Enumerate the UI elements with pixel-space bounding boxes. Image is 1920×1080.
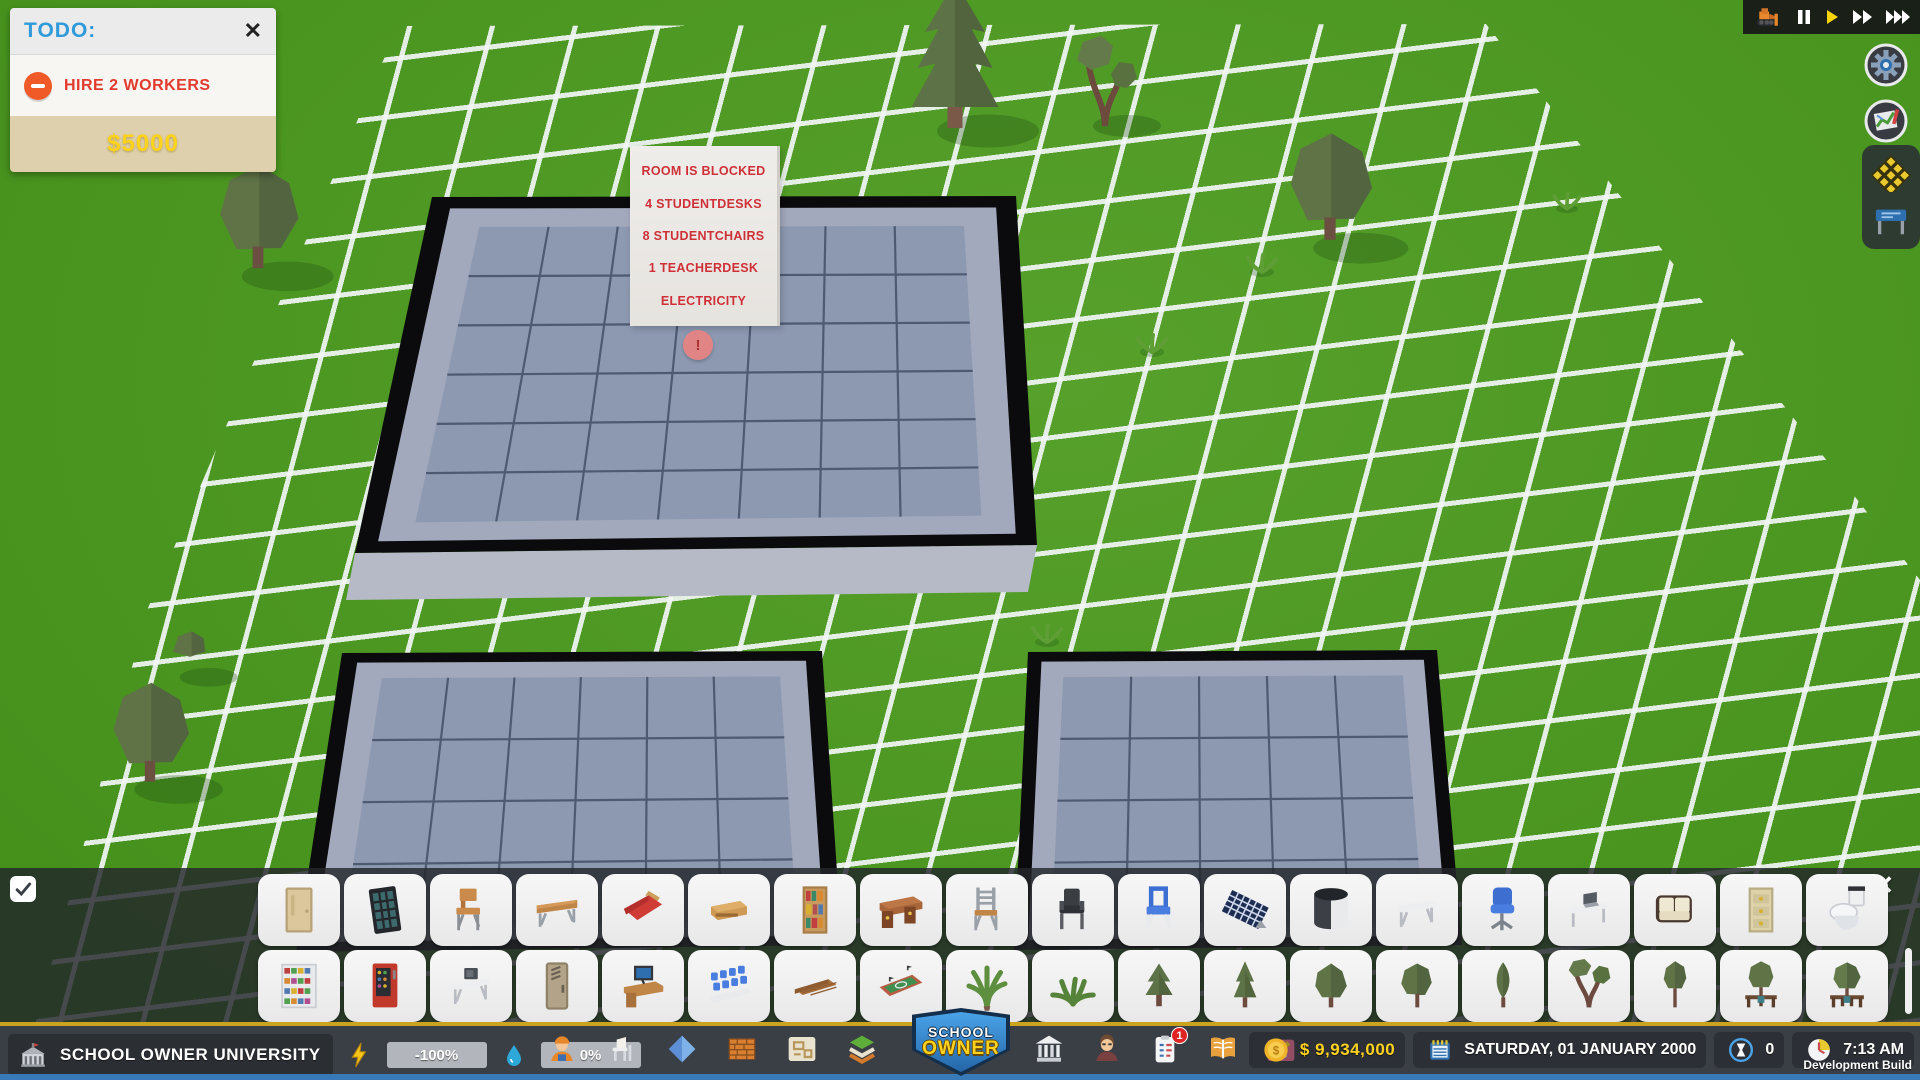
sofa-item[interactable] (1634, 874, 1716, 946)
palette-filter-checkbox[interactable] (10, 876, 36, 902)
tooltip-line: ELECTRICITY (630, 294, 777, 308)
fern-plant-item[interactable] (1032, 950, 1114, 1022)
office-chair-icon (1474, 883, 1532, 937)
game-viewport: ROOM IS BLOCKED4 STUDENTDESKS8 STUDENTCH… (0, 0, 1920, 1080)
bed-icon (614, 883, 672, 937)
computer-desk-icon (614, 959, 672, 1013)
door-icon (270, 883, 328, 937)
settings-button[interactable] (1863, 42, 1909, 88)
round-tree-icon (1388, 959, 1446, 1013)
tall-pine-tree-item[interactable] (1204, 950, 1286, 1022)
computer-table-item[interactable] (1548, 874, 1630, 946)
solar-panel-icon (1216, 883, 1274, 937)
palette-row-2 (258, 950, 1888, 1022)
minus-badge-icon (24, 72, 52, 100)
locker-item[interactable] (516, 950, 598, 1022)
sideboard-item[interactable] (688, 874, 770, 946)
blueprint-icon[interactable] (785, 1032, 819, 1066)
coin-icon: $ (1259, 1033, 1293, 1067)
logo-line2: OWNER (922, 1038, 1000, 1060)
money-value: $ 9,934,000 (1300, 1040, 1395, 1060)
plant-sprout (1248, 255, 1276, 277)
branchy-tree-icon (1560, 959, 1618, 1013)
todo-task-row[interactable]: HIRE 2 WORKERS (10, 54, 276, 116)
office-chair-item[interactable] (1462, 874, 1544, 946)
todo-title: TODO: (24, 19, 244, 43)
ladder-chair-item[interactable] (946, 874, 1028, 946)
play-button[interactable] (1823, 8, 1841, 26)
pine-tree-icon (1130, 959, 1188, 1013)
todo-header: TODO: ✕ (10, 8, 276, 54)
room-requirements-tooltip: ROOM IS BLOCKED4 STUDENTDESKS8 STUDENTCH… (630, 146, 780, 326)
move-tool-icon[interactable] (1868, 156, 1914, 192)
lessons-icon[interactable] (1206, 1032, 1240, 1066)
computer-desk-item[interactable] (602, 950, 684, 1022)
dev-build-label: Development Build (1803, 1058, 1912, 1072)
bed-item[interactable] (602, 874, 684, 946)
map-button[interactable] (1863, 98, 1909, 144)
round-tree-item[interactable] (1376, 950, 1458, 1022)
bench-tree-item[interactable] (1720, 950, 1802, 1022)
staff-icon[interactable] (1090, 1032, 1124, 1066)
shop-shelf-item[interactable] (258, 950, 340, 1022)
hourglass-box[interactable]: 0 (1714, 1032, 1784, 1068)
palette-row-1 (258, 874, 1888, 946)
basketball-court-icon (872, 959, 930, 1013)
desk-icon[interactable] (605, 1032, 639, 1066)
pause-button[interactable] (1795, 8, 1813, 26)
tall-pine-tree-icon (1216, 959, 1274, 1013)
computer-table-icon (1560, 883, 1618, 937)
microwave-table-item[interactable] (430, 950, 512, 1022)
school-building-icon (16, 1038, 50, 1072)
sofa-icon (1646, 883, 1704, 937)
drawer-cabinet-item[interactable] (1720, 874, 1802, 946)
water-drop-icon (497, 1038, 531, 1072)
lecture-seats-item[interactable] (688, 950, 770, 1022)
date-box[interactable]: SATURDAY, 01 JANUARY 2000 (1413, 1032, 1706, 1068)
window-icon (356, 883, 414, 937)
pine-tree-item[interactable] (1118, 950, 1200, 1022)
window-item[interactable] (344, 874, 426, 946)
locker-icon (528, 959, 586, 1013)
university-icon[interactable] (1032, 1032, 1066, 1066)
thin-tree-item[interactable] (1634, 950, 1716, 1022)
tree-round (220, 166, 333, 292)
money-box[interactable]: $ $ 9,934,000 (1249, 1032, 1405, 1068)
hourglass-icon (1724, 1033, 1758, 1067)
energy-value: -100% (387, 1042, 487, 1068)
school-name-box[interactable]: SCHOOL OWNER UNIVERSITY (8, 1034, 333, 1076)
terrain-layers-icon[interactable] (845, 1032, 879, 1066)
tooltip-line: ROOM IS BLOCKED (630, 164, 777, 178)
plant-sprout (1138, 335, 1166, 357)
school-chair-icon (442, 883, 500, 937)
tree-round (114, 683, 223, 804)
todo-reward-value: $5000 (107, 130, 179, 158)
water-tank-icon (1302, 883, 1360, 937)
bench-tree-icon (1732, 959, 1790, 1013)
svg-text:$: $ (1273, 1045, 1280, 1058)
tooltip-line: 1 TEACHERDESK (630, 261, 777, 275)
plant-sprout (1033, 625, 1061, 647)
fast-forward-button[interactable] (1851, 8, 1875, 26)
worker-icon[interactable] (545, 1032, 579, 1066)
bricks-icon[interactable] (725, 1032, 759, 1066)
shop-shelf-icon (270, 959, 328, 1013)
dark-chair-item[interactable] (1032, 874, 1114, 946)
tooltip-line: 8 STUDENTCHAIRS (630, 229, 777, 243)
sideboard-icon (700, 883, 758, 937)
calendar-icon (1423, 1033, 1457, 1067)
white-table-item[interactable] (1376, 874, 1458, 946)
thin-tree-icon (1646, 959, 1704, 1013)
room-warning-marker[interactable]: ! (683, 330, 713, 360)
basketball-court-item[interactable] (860, 950, 942, 1022)
tiles-icon[interactable] (665, 1032, 699, 1066)
fern-plant-icon (1044, 959, 1102, 1013)
tooltip-line: 4 STUDENTDESKS (630, 197, 777, 211)
school-name: SCHOOL OWNER UNIVERSITY (60, 1045, 321, 1065)
blue-chair-item[interactable] (1118, 874, 1200, 946)
todo-task-label: HIRE 2 WORKERS (64, 77, 211, 95)
solar-panel-item[interactable] (1204, 874, 1286, 946)
fastest-speed-button[interactable] (1885, 8, 1913, 26)
bench-tree-2-item[interactable] (1806, 950, 1888, 1022)
furniture-palette: ✕ (0, 868, 1920, 1022)
tree-branchy (1077, 36, 1161, 137)
long-table-icon (528, 883, 586, 937)
school-chair-item[interactable] (430, 874, 512, 946)
microwave-table-icon (442, 959, 500, 1013)
build-menu-icons (545, 1032, 879, 1066)
teacher-desk-icon (872, 883, 930, 937)
speed-control-bar (1743, 0, 1920, 34)
todo-panel: TODO: ✕ HIRE 2 WORKERS $5000 (10, 8, 276, 172)
cypress-tree-icon (1474, 959, 1532, 1013)
bookshelf-icon (786, 883, 844, 937)
lightning-icon (343, 1038, 377, 1072)
vending-machine-icon (356, 959, 414, 1013)
long-table-item[interactable] (516, 874, 598, 946)
time-value: 7:13 AM (1843, 1041, 1904, 1059)
date-value: SATURDAY, 01 JANUARY 2000 (1464, 1041, 1696, 1059)
tree-pine (912, 0, 1040, 148)
lecture-seats-icon (700, 959, 758, 1013)
palette-scrollbar[interactable] (1905, 948, 1912, 1014)
vending-machine-item[interactable] (344, 950, 426, 1022)
water-tank-item[interactable] (1290, 874, 1372, 946)
palm-plant-icon (958, 959, 1016, 1013)
hourglass-count: 0 (1765, 1041, 1774, 1059)
tree-bush (173, 631, 238, 686)
bushy-tree-item[interactable] (1290, 950, 1372, 1022)
branchy-tree-item[interactable] (1548, 950, 1630, 1022)
ladder-chair-icon (958, 883, 1016, 937)
teacher-desk-item[interactable] (860, 874, 942, 946)
door-item[interactable] (258, 874, 340, 946)
drawer-cabinet-icon (1732, 883, 1790, 937)
furniture-tool-icon[interactable] (1868, 202, 1914, 238)
blue-chair-icon (1130, 883, 1188, 937)
toilet-item[interactable] (1806, 874, 1888, 946)
build-tool-panel (1862, 145, 1920, 249)
cypress-tree-item[interactable] (1462, 950, 1544, 1022)
bulldozer-icon[interactable] (1751, 5, 1785, 29)
todo-reward-row: $5000 (10, 116, 276, 172)
bushy-tree-icon (1302, 959, 1360, 1013)
white-table-icon (1388, 883, 1446, 937)
todo-close-button[interactable]: ✕ (244, 20, 262, 42)
tasks-icon[interactable]: 1 (1148, 1032, 1182, 1066)
tasks-badge: 1 (1171, 1027, 1188, 1044)
wood-floor-icon (786, 959, 844, 1013)
tree-bushy (1291, 133, 1409, 263)
toilet-icon (1818, 883, 1876, 937)
bookshelf-item[interactable] (774, 874, 856, 946)
plant-sprout (1554, 193, 1579, 213)
dark-chair-icon (1044, 883, 1102, 937)
wood-floor-item[interactable] (774, 950, 856, 1022)
bench-tree-2-icon (1818, 959, 1876, 1013)
